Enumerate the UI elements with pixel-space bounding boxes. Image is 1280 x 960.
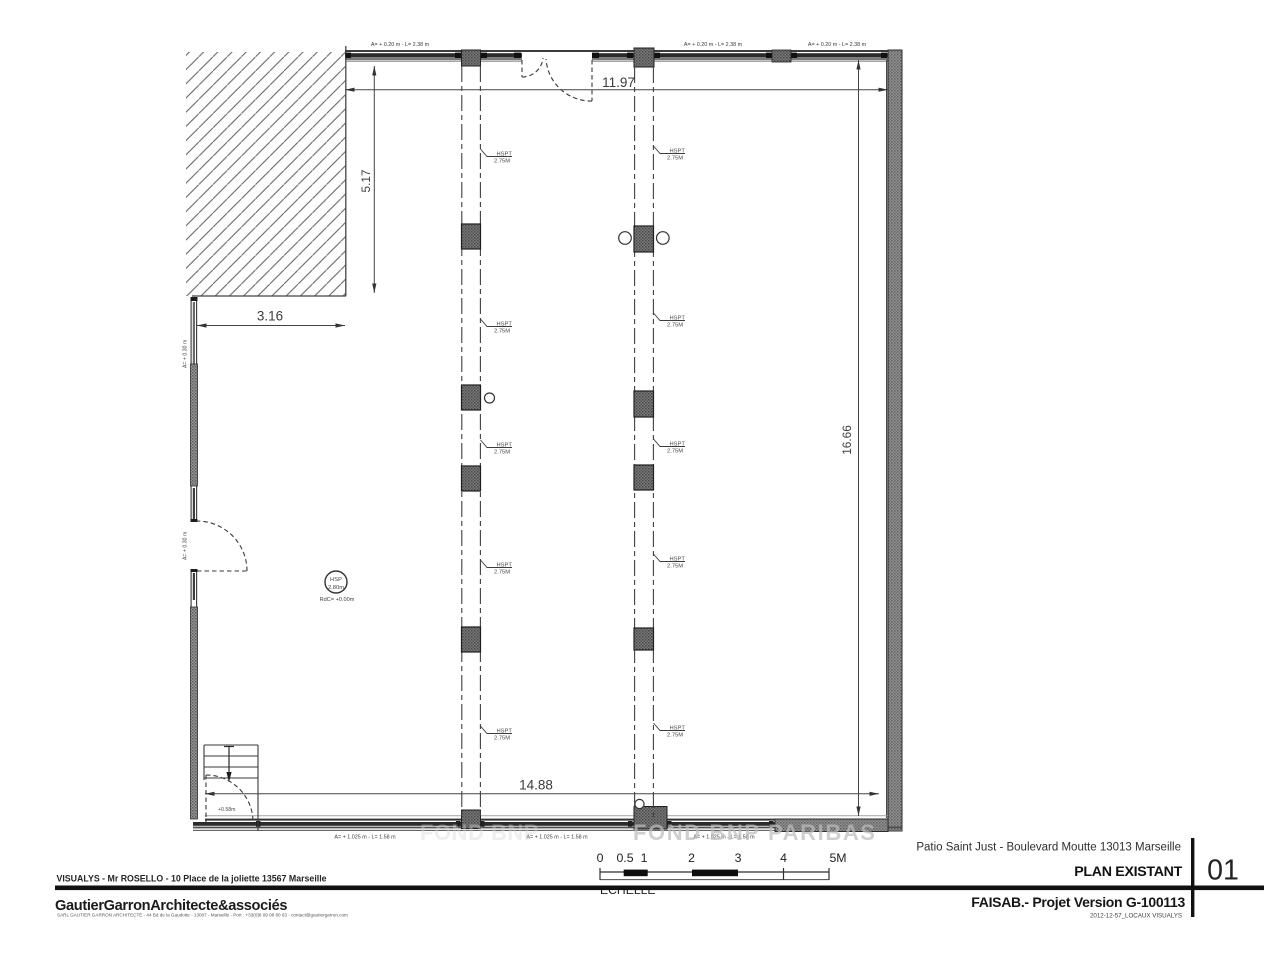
svg-text:HSPT: HSPT (497, 152, 513, 158)
svg-text:14.88: 14.88 (519, 778, 553, 793)
svg-text:A= + 0.30 m: A= + 0.30 m (183, 532, 189, 560)
svg-text:16.66: 16.66 (840, 425, 854, 455)
svg-text:2.75M: 2.75M (667, 322, 683, 328)
svg-text:2.75M: 2.75M (494, 449, 510, 455)
svg-text:HSPT: HSPT (670, 557, 686, 563)
svg-text:2.80m: 2.80m (328, 585, 344, 591)
svg-text:4: 4 (780, 851, 787, 865)
svg-text:2.75M: 2.75M (667, 563, 683, 569)
svg-text:HSPT: HSPT (497, 322, 513, 328)
svg-text:Patio Saint Just - Boulevard M: Patio Saint Just - Boulevard Moutte 1301… (916, 842, 1181, 854)
svg-text:HSPT: HSPT (497, 563, 513, 569)
svg-text:0: 0 (597, 851, 604, 865)
svg-text:A= + 0.30 m: A= + 0.30 m (183, 340, 189, 368)
svg-text:+0.58m: +0.58m (218, 807, 235, 813)
svg-text:5M: 5M (829, 851, 846, 865)
svg-text:5.17: 5.17 (359, 170, 373, 193)
svg-text:A= + 0.20 m - L= 2.38 m: A= + 0.20 m - L= 2.38 m (684, 42, 743, 48)
svg-text:SARL GAUTIER GARRON ARCHITECTE: SARL GAUTIER GARRON ARCHITECTE - 44 Bd d… (57, 912, 348, 917)
svg-text:FOND BNP PARIBAS: FOND BNP PARIBAS (633, 820, 877, 845)
svg-text:HSPT: HSPT (670, 442, 686, 448)
svg-text:HSPT: HSPT (670, 149, 686, 155)
svg-text:HSP: HSP (330, 577, 342, 583)
svg-text:01: 01 (1207, 855, 1239, 887)
svg-text:2.75M: 2.75M (667, 448, 683, 454)
svg-text:FAISAB.- Projet Version G-1001: FAISAB.- Projet Version G-100113 (971, 894, 1185, 910)
svg-text:RdC= +0.00m: RdC= +0.00m (320, 597, 355, 603)
svg-text:VISUALYS - Mr ROSELLO - 10 Pla: VISUALYS - Mr ROSELLO - 10 Place de la j… (57, 874, 327, 884)
svg-text:A= + 1.025 m - L= 1.58 m: A= + 1.025 m - L= 1.58 m (334, 835, 396, 841)
svg-text:2.75M: 2.75M (494, 158, 510, 164)
svg-text:A= + 0.20 m - L= 2.38 m: A= + 0.20 m - L= 2.38 m (371, 42, 430, 48)
svg-text:A= + 0.20 m - L= 2.38 m: A= + 0.20 m - L= 2.38 m (808, 42, 867, 48)
svg-text:11.97: 11.97 (602, 75, 635, 90)
svg-text:3: 3 (735, 851, 742, 865)
svg-text:2.75M: 2.75M (667, 155, 683, 161)
svg-text:0.5: 0.5 (616, 851, 633, 865)
svg-text:2: 2 (688, 851, 695, 865)
svg-text:HSPT: HSPT (497, 729, 513, 735)
svg-text:2.75M: 2.75M (494, 328, 510, 334)
svg-text:2.75M: 2.75M (494, 569, 510, 575)
svg-text:PLAN EXISTANT: PLAN EXISTANT (1074, 864, 1182, 880)
svg-text:1: 1 (641, 851, 648, 865)
svg-text:FOND BNP: FOND BNP (420, 820, 539, 845)
svg-text:2012-12-57_LOCAUX VISUALYS: 2012-12-57_LOCAUX VISUALYS (1090, 913, 1182, 920)
svg-text:2.75M: 2.75M (494, 735, 510, 741)
svg-text:3.16: 3.16 (257, 309, 283, 324)
svg-text:HSPT: HSPT (670, 726, 686, 732)
svg-text:2.75M: 2.75M (667, 732, 683, 738)
svg-text:HSPT: HSPT (497, 443, 513, 449)
svg-text:HSPT: HSPT (670, 316, 686, 322)
